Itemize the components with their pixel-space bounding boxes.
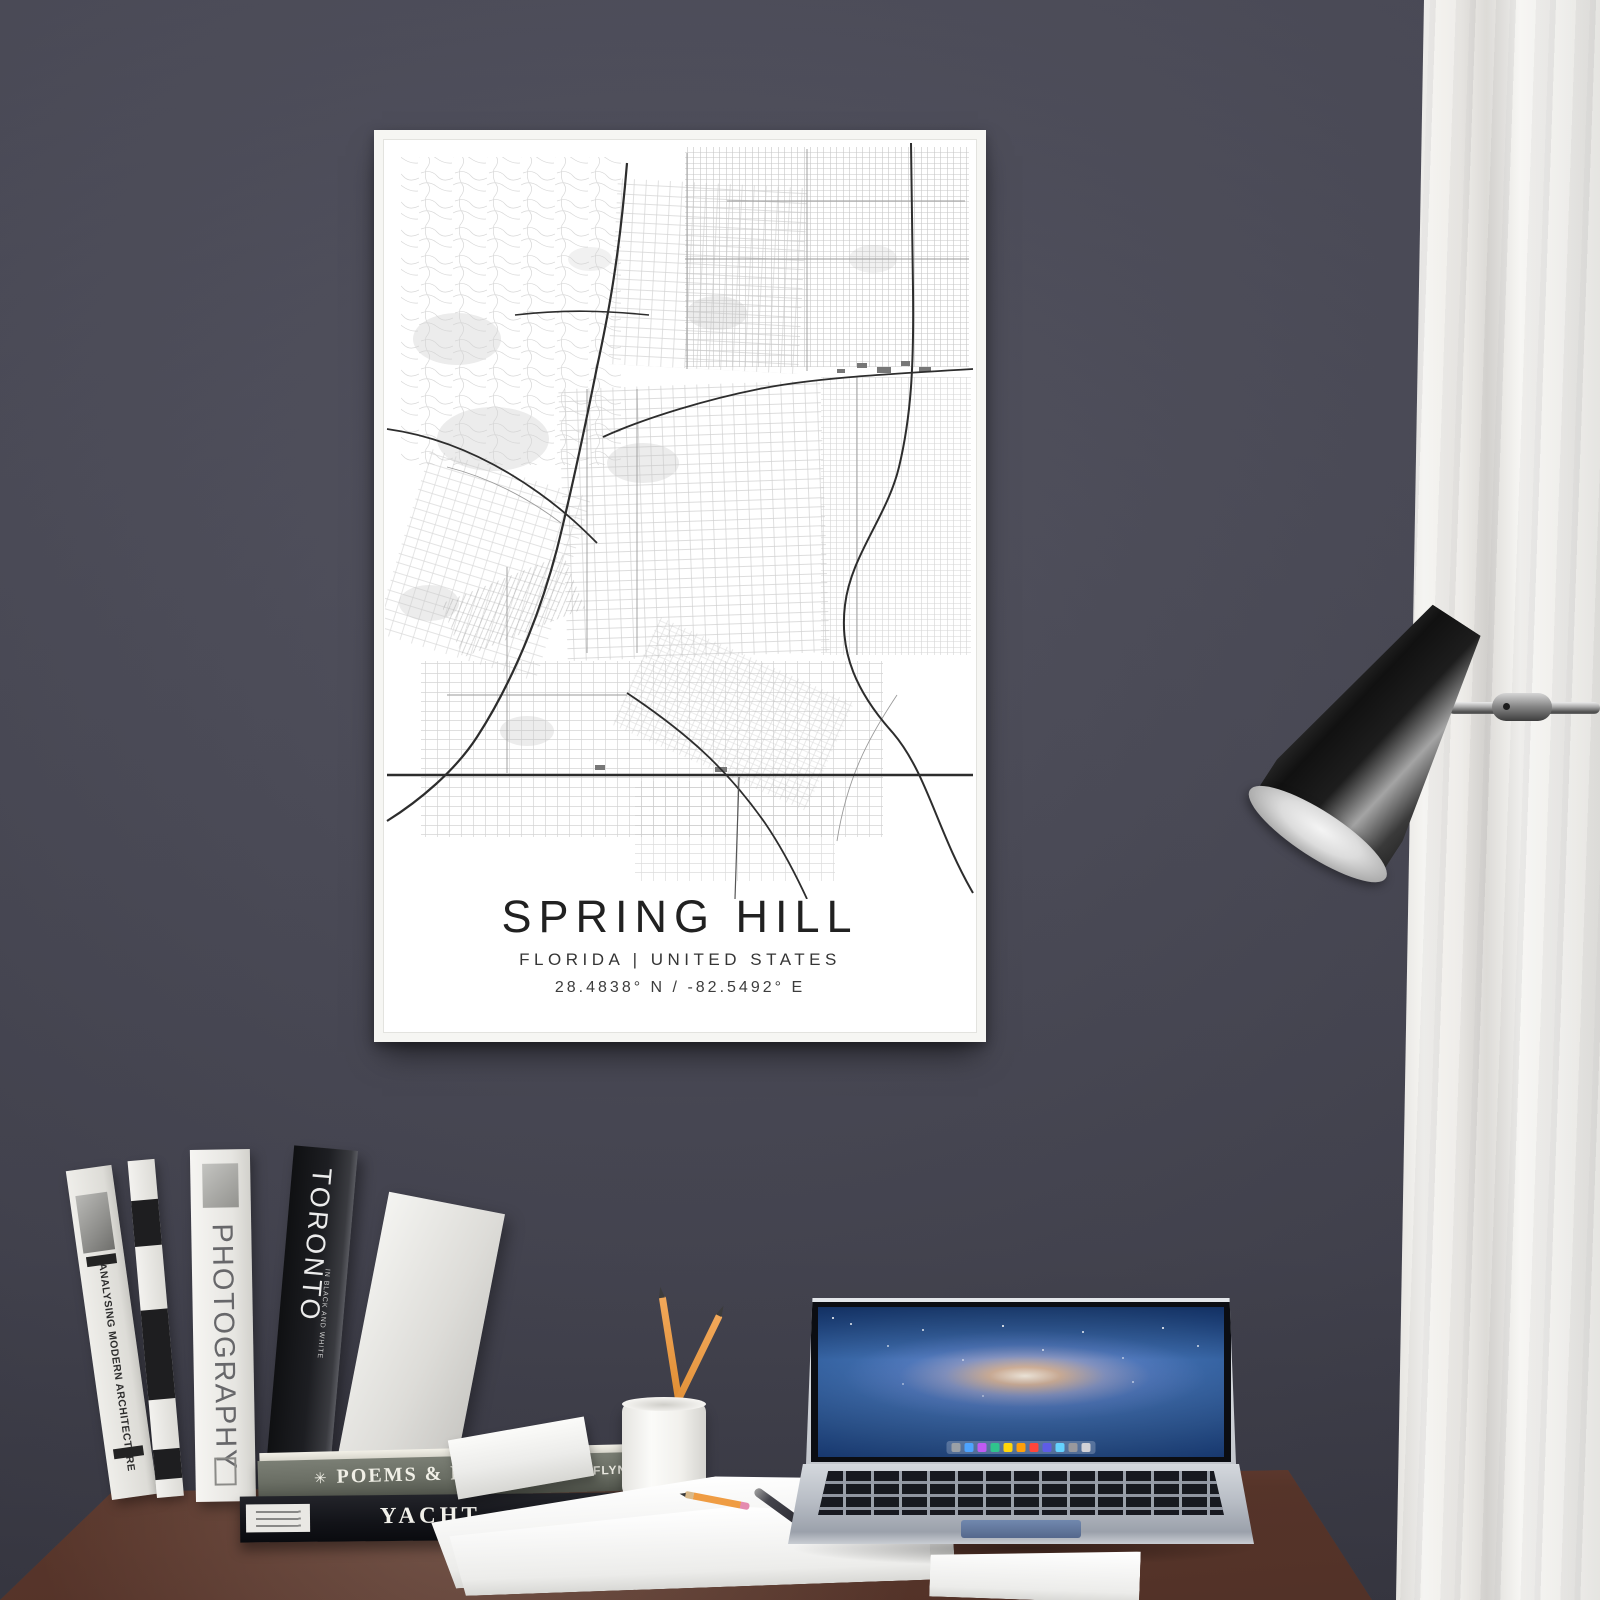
room-scene: SPRING HILL FLORIDA | UNITED STATES 28.4… [0,0,1600,1600]
dock-icon [1082,1443,1091,1452]
display-shading [818,1307,1224,1457]
book-cover-photo [75,1192,115,1254]
spine-bar [113,1445,144,1459]
dock-icon [952,1443,961,1452]
stars [832,1317,834,1319]
book-author-label [246,1504,310,1533]
publisher-logo [214,1457,236,1485]
dock-icon [1030,1443,1039,1452]
book-photography: PHOTOGRAPHY [190,1149,256,1502]
poster-subtitle: FLORIDA | UNITED STATES [385,950,975,970]
bird-icon: ✳ [314,1469,327,1487]
poster-text-block: SPRING HILL FLORIDA | UNITED STATES 28.4… [385,891,975,997]
map-poster-frame: SPRING HILL FLORIDA | UNITED STATES 28.4… [374,130,986,1042]
dock-icon [965,1443,974,1452]
laptop-display-galaxy-wallpaper [818,1307,1224,1457]
pencil-cup-rim [622,1397,706,1411]
dock-icon [1004,1443,1013,1452]
curtain-folds [1390,0,1600,1600]
dock-icon [991,1443,1000,1452]
dock-icon [978,1443,987,1452]
poster-coordinates: 28.4838° N / -82.5492° E [385,979,975,997]
spine-band [131,1199,162,1247]
dock-icon [1017,1443,1026,1452]
dock-icon [1056,1443,1065,1452]
laptop-bezel [811,1302,1231,1462]
laptop-trackpad [961,1520,1081,1538]
book-spine-title: PHOTOGRAPHY [205,1223,242,1471]
laptop-screen [806,1298,1236,1464]
map-poster: SPRING HILL FLORIDA | UNITED STATES 28.4… [385,141,975,1031]
spine-band [153,1448,183,1480]
book-spine-title: TORONTO [293,1167,337,1324]
dock-icon [1069,1443,1078,1452]
city-map [385,141,975,899]
poster-title: SPRING HILL [385,891,975,943]
dock-icon [1043,1443,1052,1452]
book-cover-photo [202,1163,239,1208]
laptop-base [788,1464,1254,1544]
laptop-keyboard [818,1471,1224,1515]
curtain [1390,0,1600,1600]
dock [947,1441,1096,1454]
